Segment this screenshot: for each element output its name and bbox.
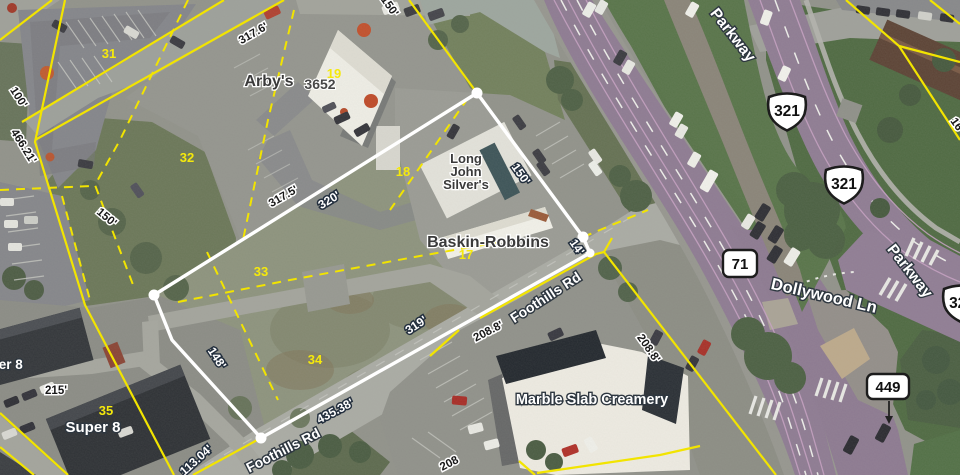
svg-text:Super 8: Super 8	[0, 357, 23, 372]
svg-text:18: 18	[396, 164, 410, 179]
svg-text:449: 449	[875, 379, 900, 396]
svg-text:Silver's: Silver's	[443, 177, 489, 192]
svg-text:34: 34	[308, 352, 323, 367]
svg-text:Super 8: Super 8	[65, 419, 120, 436]
svg-text:Arby's: Arby's	[244, 73, 293, 90]
svg-text:Baskin-Robbins: Baskin-Robbins	[427, 234, 549, 251]
svg-text:31: 31	[102, 46, 116, 61]
svg-text:32: 32	[180, 150, 194, 165]
svg-text:Marble Slab Creamery: Marble Slab Creamery	[516, 392, 668, 408]
svg-text:3652: 3652	[304, 76, 335, 92]
svg-text:33: 33	[254, 264, 268, 279]
svg-text:215': 215'	[45, 385, 67, 397]
svg-text:35: 35	[99, 403, 113, 418]
svg-text:71: 71	[732, 256, 749, 273]
